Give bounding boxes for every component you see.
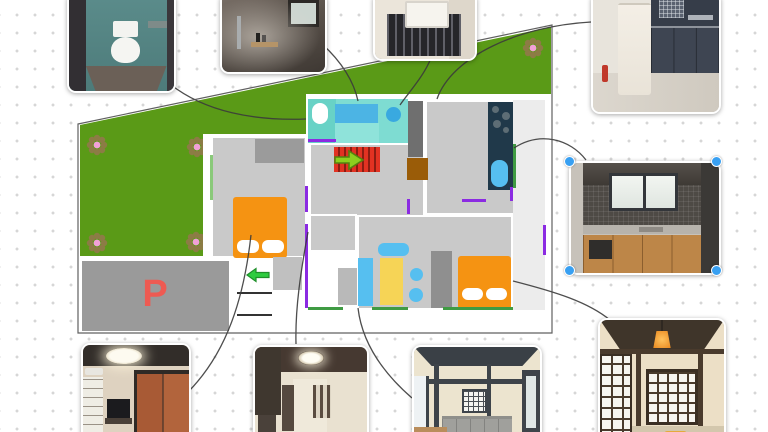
bottle — [256, 33, 260, 42]
shelf — [148, 21, 167, 28]
door-mark — [407, 199, 410, 214]
air-conditioner — [85, 368, 103, 375]
lower-cabinets — [651, 28, 719, 74]
window-mark — [443, 307, 513, 310]
refrigerator — [618, 3, 651, 95]
tv-board — [431, 251, 452, 308]
basin — [405, 1, 449, 28]
kitchen-sink — [491, 160, 508, 187]
diagram-canvas[interactable]: P — [0, 0, 768, 432]
hallway-photo[interactable] — [253, 345, 369, 432]
stool — [409, 288, 423, 302]
shoji-screen — [83, 377, 103, 432]
entry-step — [237, 314, 272, 316]
stove-burner — [502, 112, 510, 120]
window-mark — [372, 307, 408, 310]
shower-bar — [237, 16, 240, 49]
porch-block — [273, 257, 302, 290]
fridge-photo[interactable] — [591, 0, 721, 114]
door-frame — [69, 0, 86, 91]
small-door — [282, 385, 294, 431]
fire-extinguisher — [602, 65, 608, 83]
corridor-block — [338, 268, 357, 305]
entry-step — [237, 292, 272, 294]
living-photo[interactable] — [412, 345, 542, 432]
stool — [410, 268, 423, 281]
post — [636, 354, 641, 432]
sofa-plan — [358, 258, 373, 306]
cups-shelf — [688, 15, 713, 20]
toilet-bowl — [111, 37, 140, 63]
room-corridor-lower — [309, 214, 357, 252]
sink — [639, 227, 663, 233]
window-mark — [308, 307, 343, 310]
plan-bathtub — [335, 104, 378, 123]
bed-east — [458, 256, 511, 309]
counter-photo[interactable] — [569, 161, 721, 275]
wall-column — [408, 101, 423, 157]
pillow — [237, 240, 259, 253]
stair-slats — [313, 385, 331, 418]
shelf — [251, 42, 278, 47]
shower-photo[interactable] — [220, 0, 327, 74]
right-door — [255, 347, 281, 415]
shoji-screen — [600, 354, 632, 432]
selection-handle-nw[interactable] — [564, 156, 575, 167]
pillow — [486, 288, 507, 300]
stove-burner — [493, 120, 501, 128]
shoji-screen — [646, 369, 698, 425]
fusuma-panels — [134, 370, 189, 432]
grid-window — [462, 389, 487, 414]
tv-stand — [105, 418, 132, 424]
dining-table — [380, 258, 403, 305]
closet-west — [255, 139, 304, 163]
door-mark — [510, 187, 513, 201]
counter-photo-wrapper — [569, 161, 717, 271]
floor — [593, 73, 719, 112]
beam — [414, 379, 540, 384]
stove-burner — [492, 106, 499, 113]
window-mark — [513, 144, 516, 188]
microwave — [589, 240, 613, 259]
toilet-photo[interactable] — [67, 0, 176, 93]
window-mullion — [643, 173, 646, 212]
floor — [86, 66, 167, 91]
selection-handle-se[interactable] — [711, 265, 722, 276]
door-mark — [308, 139, 336, 142]
bottle — [262, 35, 266, 42]
lattice-window — [659, 0, 684, 18]
side-shelf — [378, 243, 409, 256]
beam — [434, 364, 439, 432]
plan-bath-floor — [335, 123, 379, 143]
tv-screen — [107, 399, 129, 417]
plan-washbasin — [386, 107, 401, 122]
selection-handle-sw[interactable] — [564, 265, 575, 276]
lamp-cord — [661, 320, 663, 332]
entry-arrow-icon — [245, 267, 271, 283]
sofa — [442, 416, 513, 432]
right-column — [701, 163, 719, 273]
tv-photo[interactable] — [81, 343, 191, 432]
post — [698, 354, 703, 432]
door-mark — [543, 225, 546, 255]
door-mark — [305, 224, 308, 308]
parking-label: P — [82, 261, 229, 327]
shoji-photo[interactable] — [598, 318, 726, 432]
toilet-tank — [113, 21, 138, 37]
window-mark — [210, 155, 213, 200]
stove-burner — [503, 127, 509, 133]
selection-handle-ne[interactable] — [711, 156, 722, 167]
sink-photo[interactable] — [373, 0, 477, 61]
ceiling — [414, 347, 540, 366]
door-mark — [462, 199, 486, 202]
room-east-strip — [513, 100, 545, 310]
pillow — [462, 288, 483, 300]
door-frame — [167, 0, 174, 91]
table — [414, 427, 447, 432]
plan-toilet — [312, 103, 328, 124]
window — [414, 376, 429, 428]
door-mark — [305, 186, 308, 212]
entrance-mat — [407, 158, 428, 180]
pillow — [262, 240, 284, 253]
stairs-up-arrow-icon — [333, 149, 365, 171]
door-pane — [526, 376, 536, 428]
